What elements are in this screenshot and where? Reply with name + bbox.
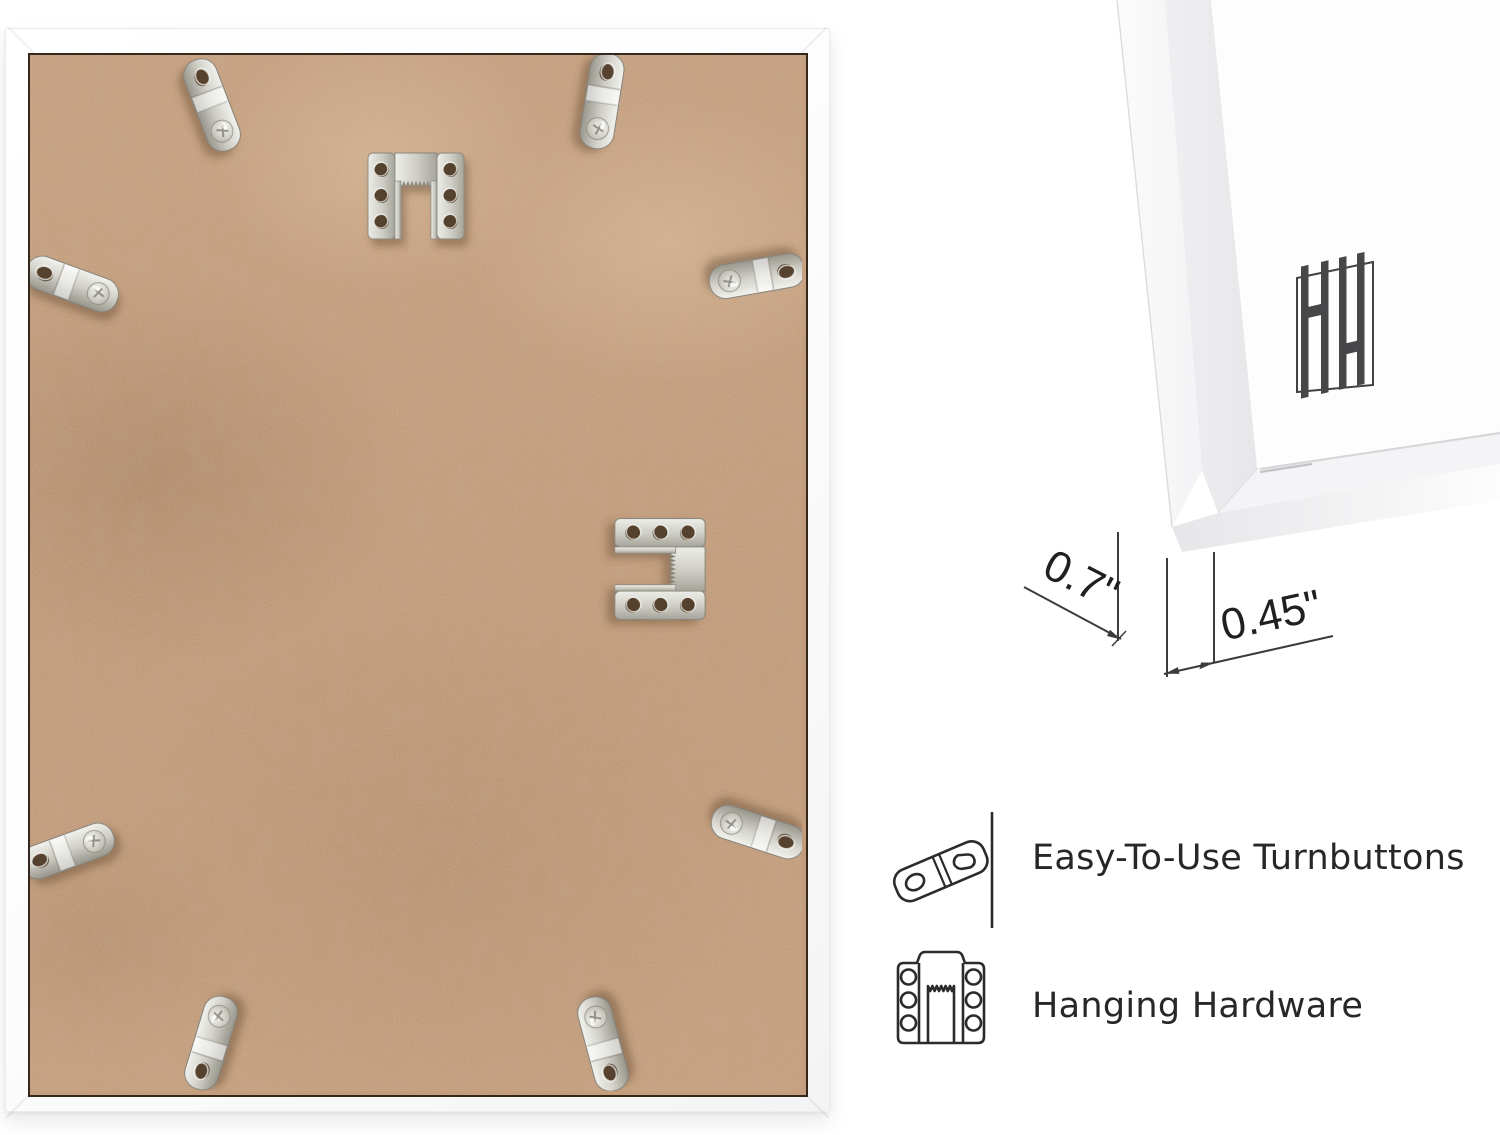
dimension-annotations: 0.7" 0.45" [1000,420,1420,700]
dimension-face-label: 0.45" [1216,581,1325,651]
feature-label: Easy-To-Use Turnbuttons [1032,838,1465,878]
mdf-backing-board [28,53,808,1097]
frame-mat-area [1212,0,1500,466]
sawtooth-hanger-icon [890,950,992,1046]
feature-label: Hanging Hardware [1032,986,1363,1026]
turnbutton-icon [886,806,1004,934]
frame-miter-line [801,26,828,53]
dimension-depth-label: 0.7" [1036,540,1127,619]
frame-miter-line [8,26,35,53]
frame-back-photo [5,28,830,1112]
hardware-layer [30,55,802,1091]
product-image-canvas: 0.7" 0.45" Easy-To-Use Turnbuttons [0,0,1500,1135]
